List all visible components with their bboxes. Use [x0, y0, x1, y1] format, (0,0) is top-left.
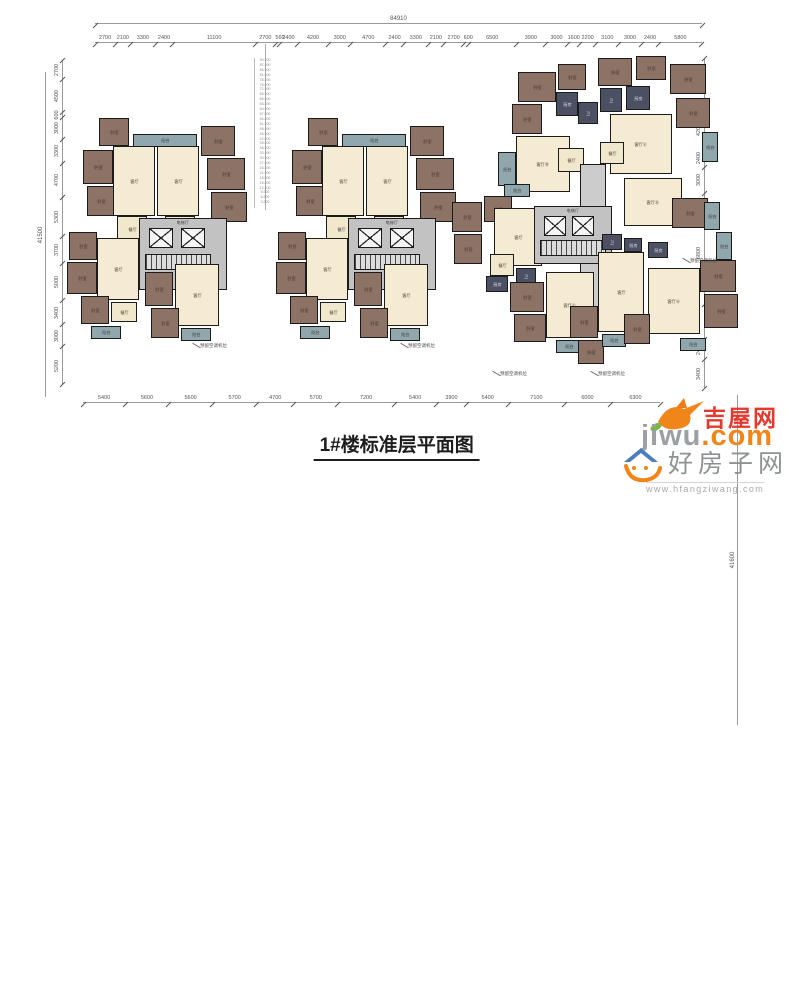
dimension-label: 3000 — [54, 330, 60, 342]
room-label: 客厅 — [193, 293, 201, 298]
room-label: 厨房 — [493, 282, 501, 287]
dimension-value: 3000 — [545, 30, 567, 43]
room-label: 厨房 — [654, 248, 662, 253]
room-label: 卧室 — [463, 215, 471, 220]
dimension-left-segments: 2700450060030003300470053003700500034003… — [50, 60, 63, 385]
dimension-value: 5300 — [50, 198, 63, 237]
dimension-value: 1600 — [568, 30, 580, 43]
room-balcony: 阳台 — [300, 326, 330, 339]
dimension-value: 4700 — [351, 30, 386, 43]
dimension-value: 6000 — [564, 390, 611, 403]
room-bath: 厨房 — [556, 92, 578, 116]
room-bedroom: 卧室 — [510, 282, 544, 312]
room-bath: 厨房 — [624, 238, 642, 252]
dimension-label: 3000 — [329, 35, 351, 41]
room-label: 卧室 — [222, 172, 230, 177]
room-bedroom: 卧室 — [578, 340, 604, 364]
room-label: 客厅 — [174, 179, 182, 184]
dimension-label: 5400 — [83, 395, 125, 401]
room-label: 客厅 — [617, 290, 625, 295]
room-label: 卧室 — [161, 321, 169, 326]
room-label: 卧室 — [300, 308, 308, 313]
room-bedroom: 卧室 — [672, 198, 708, 228]
dimension-value: 2700 — [95, 30, 115, 43]
room-label: 阳台 — [708, 214, 716, 219]
elevator-shaft — [149, 228, 173, 248]
dimension-value: 2100 — [428, 30, 444, 43]
room-living: 客厅 — [97, 238, 139, 300]
dimension-label: 2700 — [95, 35, 115, 41]
room-living: 客厅 — [175, 264, 219, 326]
dimension-top-total: 84910 — [95, 12, 702, 24]
room-label: 卧室 — [434, 205, 442, 210]
room-balcony: 阳台 — [602, 334, 626, 347]
room-label: 卧室 — [91, 308, 99, 313]
dimension-label: 2700 — [444, 35, 464, 41]
dimension-top-segments: 2700210033002400111002700560240042003000… — [95, 30, 702, 43]
room-label: 阳台 — [503, 167, 511, 172]
room-label: 阳台 — [565, 344, 573, 349]
dimension-value: 5700 — [294, 390, 338, 403]
room-bedroom: 卧室 — [452, 202, 482, 232]
dimension-value: 6500 — [468, 30, 516, 43]
room-bedroom: 卧室 — [151, 308, 179, 338]
room-label: 餐厅 — [120, 310, 128, 315]
room-bedroom: 卧室 — [278, 232, 306, 260]
room-label: 卧室 — [364, 287, 372, 292]
dimension-value: 2700 — [444, 30, 464, 43]
room-bath: 卫 — [602, 234, 622, 250]
dimension-value: 3000 — [50, 117, 63, 139]
dimension-value: 2400 — [155, 30, 173, 43]
room-label: 阳台 — [689, 342, 697, 347]
elevator-shaft — [358, 228, 382, 248]
room-label: 电梯厅 — [177, 220, 189, 225]
elevator-shaft — [181, 228, 205, 248]
room-label: 厨房 — [563, 102, 571, 107]
room-label: 卧室 — [717, 309, 725, 314]
room-balcony: 阳台 — [91, 326, 121, 339]
room-dining: 餐厅 — [320, 302, 346, 322]
room-label: 卧室 — [306, 199, 314, 204]
room-living: 客厅 — [322, 146, 364, 216]
dimension-label: 2400 — [696, 151, 702, 163]
room-label: 客厅 — [402, 293, 410, 298]
room-living: 客厅Ⓐ — [648, 268, 700, 334]
dimension-value: 2700 — [255, 30, 275, 43]
room-label: 阳台 — [513, 188, 521, 193]
room-label: 卧室 — [79, 244, 87, 249]
room-label: 卫 — [586, 111, 590, 116]
dimension-label: 5400 — [467, 395, 509, 401]
room-bedroom: 卧室 — [558, 64, 586, 90]
dimension-value: 5200 — [50, 347, 63, 385]
drawing-sheet: { "title": { "text": "1#楼标准层平面图" }, "col… — [0, 0, 800, 500]
room-label: 卧室 — [533, 85, 541, 90]
room-bedroom: 卧室 — [700, 260, 736, 292]
room-label: 客厅 — [383, 179, 391, 184]
room-label: 阳台 — [610, 338, 618, 343]
dimension-label: 11100 — [173, 35, 255, 41]
room-label: 卧室 — [214, 139, 222, 144]
room-label: 电梯厅 — [386, 220, 398, 225]
room-label: 卧室 — [684, 77, 692, 82]
room-bedroom: 卧室 — [290, 296, 318, 324]
dimension-value: 5000 — [50, 263, 63, 300]
dimension-value: 5600 — [125, 390, 169, 403]
room-label: 电梯厅 — [567, 208, 579, 213]
elevator-shaft — [390, 228, 414, 248]
dimension-label: 3100 — [596, 35, 619, 41]
dimension-value: 3700 — [50, 236, 63, 263]
dimension-value: 3100 — [596, 30, 619, 43]
dimension-label: 3900 — [436, 395, 466, 401]
dimension-value: 2400 — [386, 30, 404, 43]
room-living: 客厅 — [366, 146, 408, 216]
room-label: 卧室 — [580, 320, 588, 325]
dimension-label: 2700 — [54, 64, 60, 76]
dimension-value: 3300 — [404, 30, 429, 43]
dimension-label: 3000 — [696, 174, 702, 186]
dimension-label: 4200 — [297, 35, 328, 41]
room-label: 卧室 — [94, 165, 102, 170]
dimension-label: 2100 — [428, 35, 444, 41]
room-balcony: 阳台 — [704, 202, 720, 230]
dimension-bottom-segments: 5400560056005700470057007200540039005400… — [83, 390, 660, 403]
dimension-label: 5600 — [125, 395, 169, 401]
dimension-right-total-value: 41600 — [730, 552, 736, 569]
dimension-value: 3300 — [50, 139, 63, 163]
room-bedroom: 卧室 — [201, 126, 235, 156]
room-bedroom: 卧室 — [207, 158, 245, 190]
room-bedroom: 卧室 — [69, 232, 97, 260]
elevator-shaft — [572, 216, 594, 236]
room-label: 厨房 — [634, 96, 642, 101]
room-label: 阳台 — [401, 332, 409, 337]
dimension-label: 2400 — [641, 35, 659, 41]
room-bedroom: 卧室 — [81, 296, 109, 324]
room-bedroom: 卧室 — [87, 186, 115, 216]
dimension-value: 3900 — [516, 30, 545, 43]
dimension-value: 5600 — [169, 390, 213, 403]
room-dining: 餐厅 — [111, 302, 137, 322]
room-label: 卧室 — [587, 350, 595, 355]
room-bath: 卫 — [578, 102, 598, 124]
staircase — [540, 240, 606, 256]
room-label: 客厅 — [514, 235, 522, 240]
dimension-label: 7200 — [338, 395, 394, 401]
room-bedroom: 卧室 — [704, 294, 738, 328]
room-bedroom: 卧室 — [676, 98, 710, 128]
room-bedroom: 卧室 — [416, 158, 454, 190]
dimension-label: 3300 — [54, 145, 60, 157]
dimension-label: 5700 — [294, 395, 338, 401]
dimension-label: 2100 — [115, 35, 131, 41]
dimension-label: 3700 — [54, 244, 60, 256]
elevation-level: 3.200 — [255, 200, 275, 205]
room-label: 卫 — [609, 98, 613, 103]
dimension-label: 5700 — [212, 395, 256, 401]
dimension-value: 4700 — [257, 390, 294, 403]
room-bedroom: 卧室 — [292, 150, 322, 184]
room-bath: 厨房 — [486, 276, 508, 292]
room-label: 卧室 — [611, 70, 619, 75]
dimension-label: 5600 — [169, 395, 213, 401]
room-label: 卧室 — [155, 287, 163, 292]
room-label: 餐厅 — [337, 227, 345, 232]
dimension-label: 2400 — [155, 35, 173, 41]
room-bedroom: 卧室 — [410, 126, 444, 156]
dimension-value: 5800 — [659, 30, 702, 43]
room-label: 卧室 — [526, 326, 534, 331]
ac-unit-annotation: 预留空调机位 — [690, 258, 717, 264]
room-label: 阳台 — [311, 330, 319, 335]
room-label: 卧室 — [287, 276, 295, 281]
dimension-value: 7200 — [338, 390, 394, 403]
room-bedroom: 卧室 — [512, 104, 542, 134]
room-label: 卫 — [524, 274, 528, 279]
room-label: 卧室 — [288, 244, 296, 249]
room-bedroom: 卧室 — [514, 314, 546, 342]
room-label: 阳台 — [102, 330, 110, 335]
room-label: 客厅 — [114, 267, 122, 272]
room-bedroom: 卧室 — [308, 118, 338, 146]
room-label: 阳台 — [161, 138, 169, 143]
room-label: 客厅 — [130, 179, 138, 184]
dimension-value: 4700 — [50, 163, 63, 197]
room-label: 餐厅 — [329, 310, 337, 315]
room-label: 客厅Ⓑ — [537, 162, 549, 167]
room-label: 客厅 — [339, 179, 347, 184]
room-label: 客厅Ⓐ — [668, 299, 680, 304]
haofangzi-site-name: 好房子网 — [668, 444, 788, 480]
room-label: 卧室 — [647, 66, 655, 71]
dimension-label: 6000 — [564, 395, 611, 401]
room-label: 客厅Ⓓ — [647, 200, 659, 205]
room-label: 卧室 — [464, 247, 472, 252]
ac-unit-annotation: 预留空调机位 — [500, 371, 527, 377]
room-balcony: 阳台 — [390, 328, 420, 341]
room-label: 餐厅 — [567, 158, 575, 163]
dimension-top-total-value: 84910 — [95, 16, 702, 22]
room-label: 餐厅 — [498, 263, 506, 268]
room-bedroom: 卧室 — [570, 306, 598, 338]
dimension-value: 2100 — [115, 30, 131, 43]
room-label: 卧室 — [78, 276, 86, 281]
room-bedroom: 卧室 — [624, 314, 650, 344]
room-label: 阳台 — [720, 244, 728, 249]
dimension-value: 5400 — [394, 390, 436, 403]
room-label: 卧室 — [423, 139, 431, 144]
dimension-label: 5400 — [394, 395, 436, 401]
dimension-label: 2700 — [255, 35, 275, 41]
room-label: 阳台 — [192, 332, 200, 337]
room-label: 卧室 — [225, 205, 233, 210]
dimension-label: 1600 — [568, 35, 580, 41]
room-bath: 厨房 — [648, 242, 668, 258]
room-label: 客厅Ⓔ — [635, 142, 647, 147]
dimension-value: 2400 — [280, 30, 298, 43]
dimension-label: 2400 — [280, 35, 298, 41]
room-dining: 餐厅 — [490, 254, 514, 276]
ac-unit-annotation: 预留空调机位 — [200, 343, 227, 349]
dimension-label: 3300 — [404, 35, 429, 41]
room-bedroom: 卧室 — [145, 272, 173, 306]
dimension-value: 3900 — [436, 390, 466, 403]
room-bedroom: 卧室 — [454, 234, 482, 264]
room-label: 卧室 — [319, 130, 327, 135]
room-label: 卧室 — [523, 117, 531, 122]
room-bedroom: 卧室 — [360, 308, 388, 338]
dimension-value: 3000 — [619, 30, 641, 43]
dimension-value: 4500 — [50, 80, 63, 113]
elevator-shaft — [544, 216, 566, 236]
dimension-value: 2700 — [50, 60, 63, 80]
room-balcony: 阳台 — [716, 232, 732, 260]
dimension-value: 3300 — [131, 30, 156, 43]
dimension-label: 3000 — [619, 35, 641, 41]
ac-unit-annotation: 预留空调机位 — [598, 371, 625, 377]
dimension-value: 2200 — [579, 30, 595, 43]
dimension-value: 3400 — [692, 359, 705, 388]
room-bedroom: 卧室 — [296, 186, 324, 216]
dimension-label: 4700 — [54, 174, 60, 186]
room-bedroom: 卧室 — [636, 56, 666, 80]
dimension-value: 3000 — [692, 168, 705, 193]
dimension-label: 4500 — [54, 90, 60, 102]
dimension-value: 5400 — [467, 390, 509, 403]
ac-unit-annotation: 预留空调机位 — [408, 343, 435, 349]
room-label: 卧室 — [303, 165, 311, 170]
room-balcony: 阳台 — [702, 132, 718, 162]
room-label: 卧室 — [689, 111, 697, 116]
dimension-label: 2400 — [386, 35, 404, 41]
room-bedroom: 卧室 — [67, 262, 97, 294]
room-label: 卫 — [610, 240, 614, 245]
room-label: 餐厅 — [608, 151, 616, 156]
room-bath: 厨房 — [626, 86, 650, 110]
room-bedroom: 卧室 — [99, 118, 129, 146]
room-bedroom: 卧室 — [276, 262, 306, 294]
dimension-label: 3300 — [131, 35, 156, 41]
room-label: 卧室 — [431, 172, 439, 177]
dimension-label: 5300 — [54, 211, 60, 223]
dimension-value: 3000 — [329, 30, 351, 43]
room-label: 阳台 — [706, 145, 714, 150]
room-label: 卧室 — [633, 327, 641, 332]
dimension-value: 3000 — [50, 325, 63, 347]
dimension-value: 2400 — [641, 30, 659, 43]
dimension-value: 5400 — [83, 390, 125, 403]
dimension-label: 5000 — [54, 276, 60, 288]
room-balcony: 阳台 — [680, 338, 706, 351]
dimension-label: 2200 — [579, 35, 595, 41]
room-living: 客厅 — [384, 264, 428, 326]
room-living: 客厅 — [157, 146, 199, 216]
dimension-label: 5800 — [659, 35, 702, 41]
dimension-label: 3400 — [54, 306, 60, 318]
room-label: 卧室 — [714, 274, 722, 279]
dimension-label: 7100 — [509, 395, 564, 401]
room-label: 卧室 — [686, 211, 694, 216]
dimension-label: 3000 — [545, 35, 567, 41]
dimension-left-total: 41500 — [34, 72, 46, 397]
dimension-label: 5200 — [54, 360, 60, 372]
room-label: 卧室 — [523, 295, 531, 300]
room-bath: 卫 — [600, 88, 622, 112]
elevation-level-table: 90.20087.20084.20081.20078.20075.20072.2… — [254, 58, 275, 208]
dimension-label: 3000 — [54, 122, 60, 134]
haofangzi-url: www.hfangziwang.com — [646, 482, 764, 494]
room-label: 餐厅 — [128, 227, 136, 232]
room-dining: 餐厅 — [600, 142, 624, 164]
room-label: 厨房 — [629, 243, 637, 248]
room-bedroom: 卧室 — [670, 64, 706, 94]
room-label: 卧室 — [110, 130, 118, 135]
room-balcony: 阳台 — [181, 328, 211, 341]
dimension-label: 4700 — [351, 35, 386, 41]
room-label: 阳台 — [370, 138, 378, 143]
room-bedroom: 卧室 — [518, 72, 556, 102]
drawing-title: 1#楼标准层平面图 — [314, 430, 480, 461]
room-living: 客厅 — [306, 238, 348, 300]
dimension-label: 6500 — [468, 35, 516, 41]
dimension-value: 5700 — [212, 390, 256, 403]
room-label: 卧室 — [568, 75, 576, 80]
room-balcony: 阳台 — [498, 152, 516, 186]
room-living: 客厅 — [113, 146, 155, 216]
room-bedroom: 卧室 — [83, 150, 113, 184]
dimension-label: 4700 — [257, 395, 294, 401]
dimension-value: 7100 — [509, 390, 564, 403]
dimension-left-total-value: 41500 — [38, 226, 44, 243]
room-bedroom: 卧室 — [598, 58, 632, 86]
room-label: 卧室 — [370, 321, 378, 326]
dimension-value: 3400 — [50, 300, 63, 325]
dimension-label: 3900 — [516, 35, 545, 41]
dimension-value: 4200 — [297, 30, 328, 43]
dimension-label: 3400 — [696, 368, 702, 380]
room-label: 客厅 — [323, 267, 331, 272]
room-bedroom: 卧室 — [354, 272, 382, 306]
dimension-value: 11100 — [173, 30, 255, 43]
room-label: 卧室 — [97, 199, 105, 204]
